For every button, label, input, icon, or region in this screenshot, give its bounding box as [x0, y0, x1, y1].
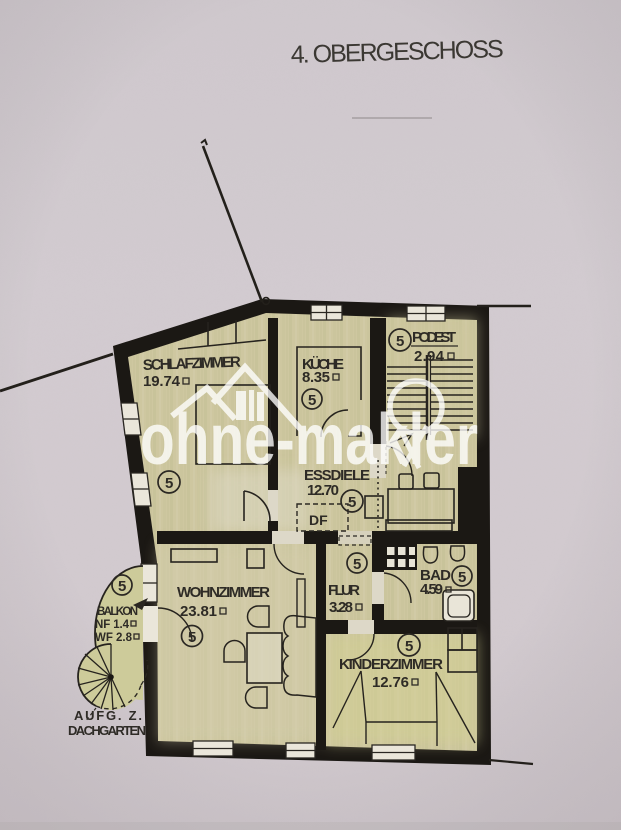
svg-text:WOHNZIMMER: WOHNZIMMER: [177, 584, 270, 601]
svg-text:5: 5: [396, 333, 404, 350]
svg-text:ohne-makler: ohne-makler: [140, 400, 478, 480]
svg-text:WF 2.8: WF 2.8: [95, 632, 133, 644]
svg-text:8.35: 8.35: [302, 369, 330, 386]
svg-text:5: 5: [405, 638, 413, 655]
svg-text:FLUR: FLUR: [328, 582, 360, 599]
svg-text:KINDERZIMMER: KINDERZIMMER: [339, 656, 443, 673]
svg-text:DF: DF: [309, 512, 328, 528]
svg-text:AUFG. Z.: AUFG. Z.: [74, 708, 142, 723]
svg-text:12.76: 12.76: [372, 674, 409, 691]
svg-text:5: 5: [118, 578, 126, 595]
svg-text:SCHLAFZIMMER: SCHLAFZIMMER: [143, 354, 242, 374]
svg-text:5: 5: [458, 569, 466, 586]
svg-text:4.59: 4.59: [420, 581, 443, 598]
svg-text:BALKON: BALKON: [97, 606, 138, 618]
svg-text:PODEST: PODEST: [412, 329, 456, 346]
svg-text:5: 5: [188, 629, 196, 646]
svg-text:23.81: 23.81: [180, 603, 217, 620]
svg-text:19.74: 19.74: [143, 373, 181, 390]
svg-text:3.28: 3.28: [329, 599, 353, 616]
svg-text:NF 1.4: NF 1.4: [95, 619, 130, 631]
svg-text:2.94: 2.94: [414, 348, 445, 365]
svg-text:5: 5: [353, 556, 361, 573]
svg-text:DACHGARTEN: DACHGARTEN: [68, 723, 146, 738]
svg-text:12.70: 12.70: [307, 482, 339, 499]
svg-text:5: 5: [348, 494, 356, 511]
